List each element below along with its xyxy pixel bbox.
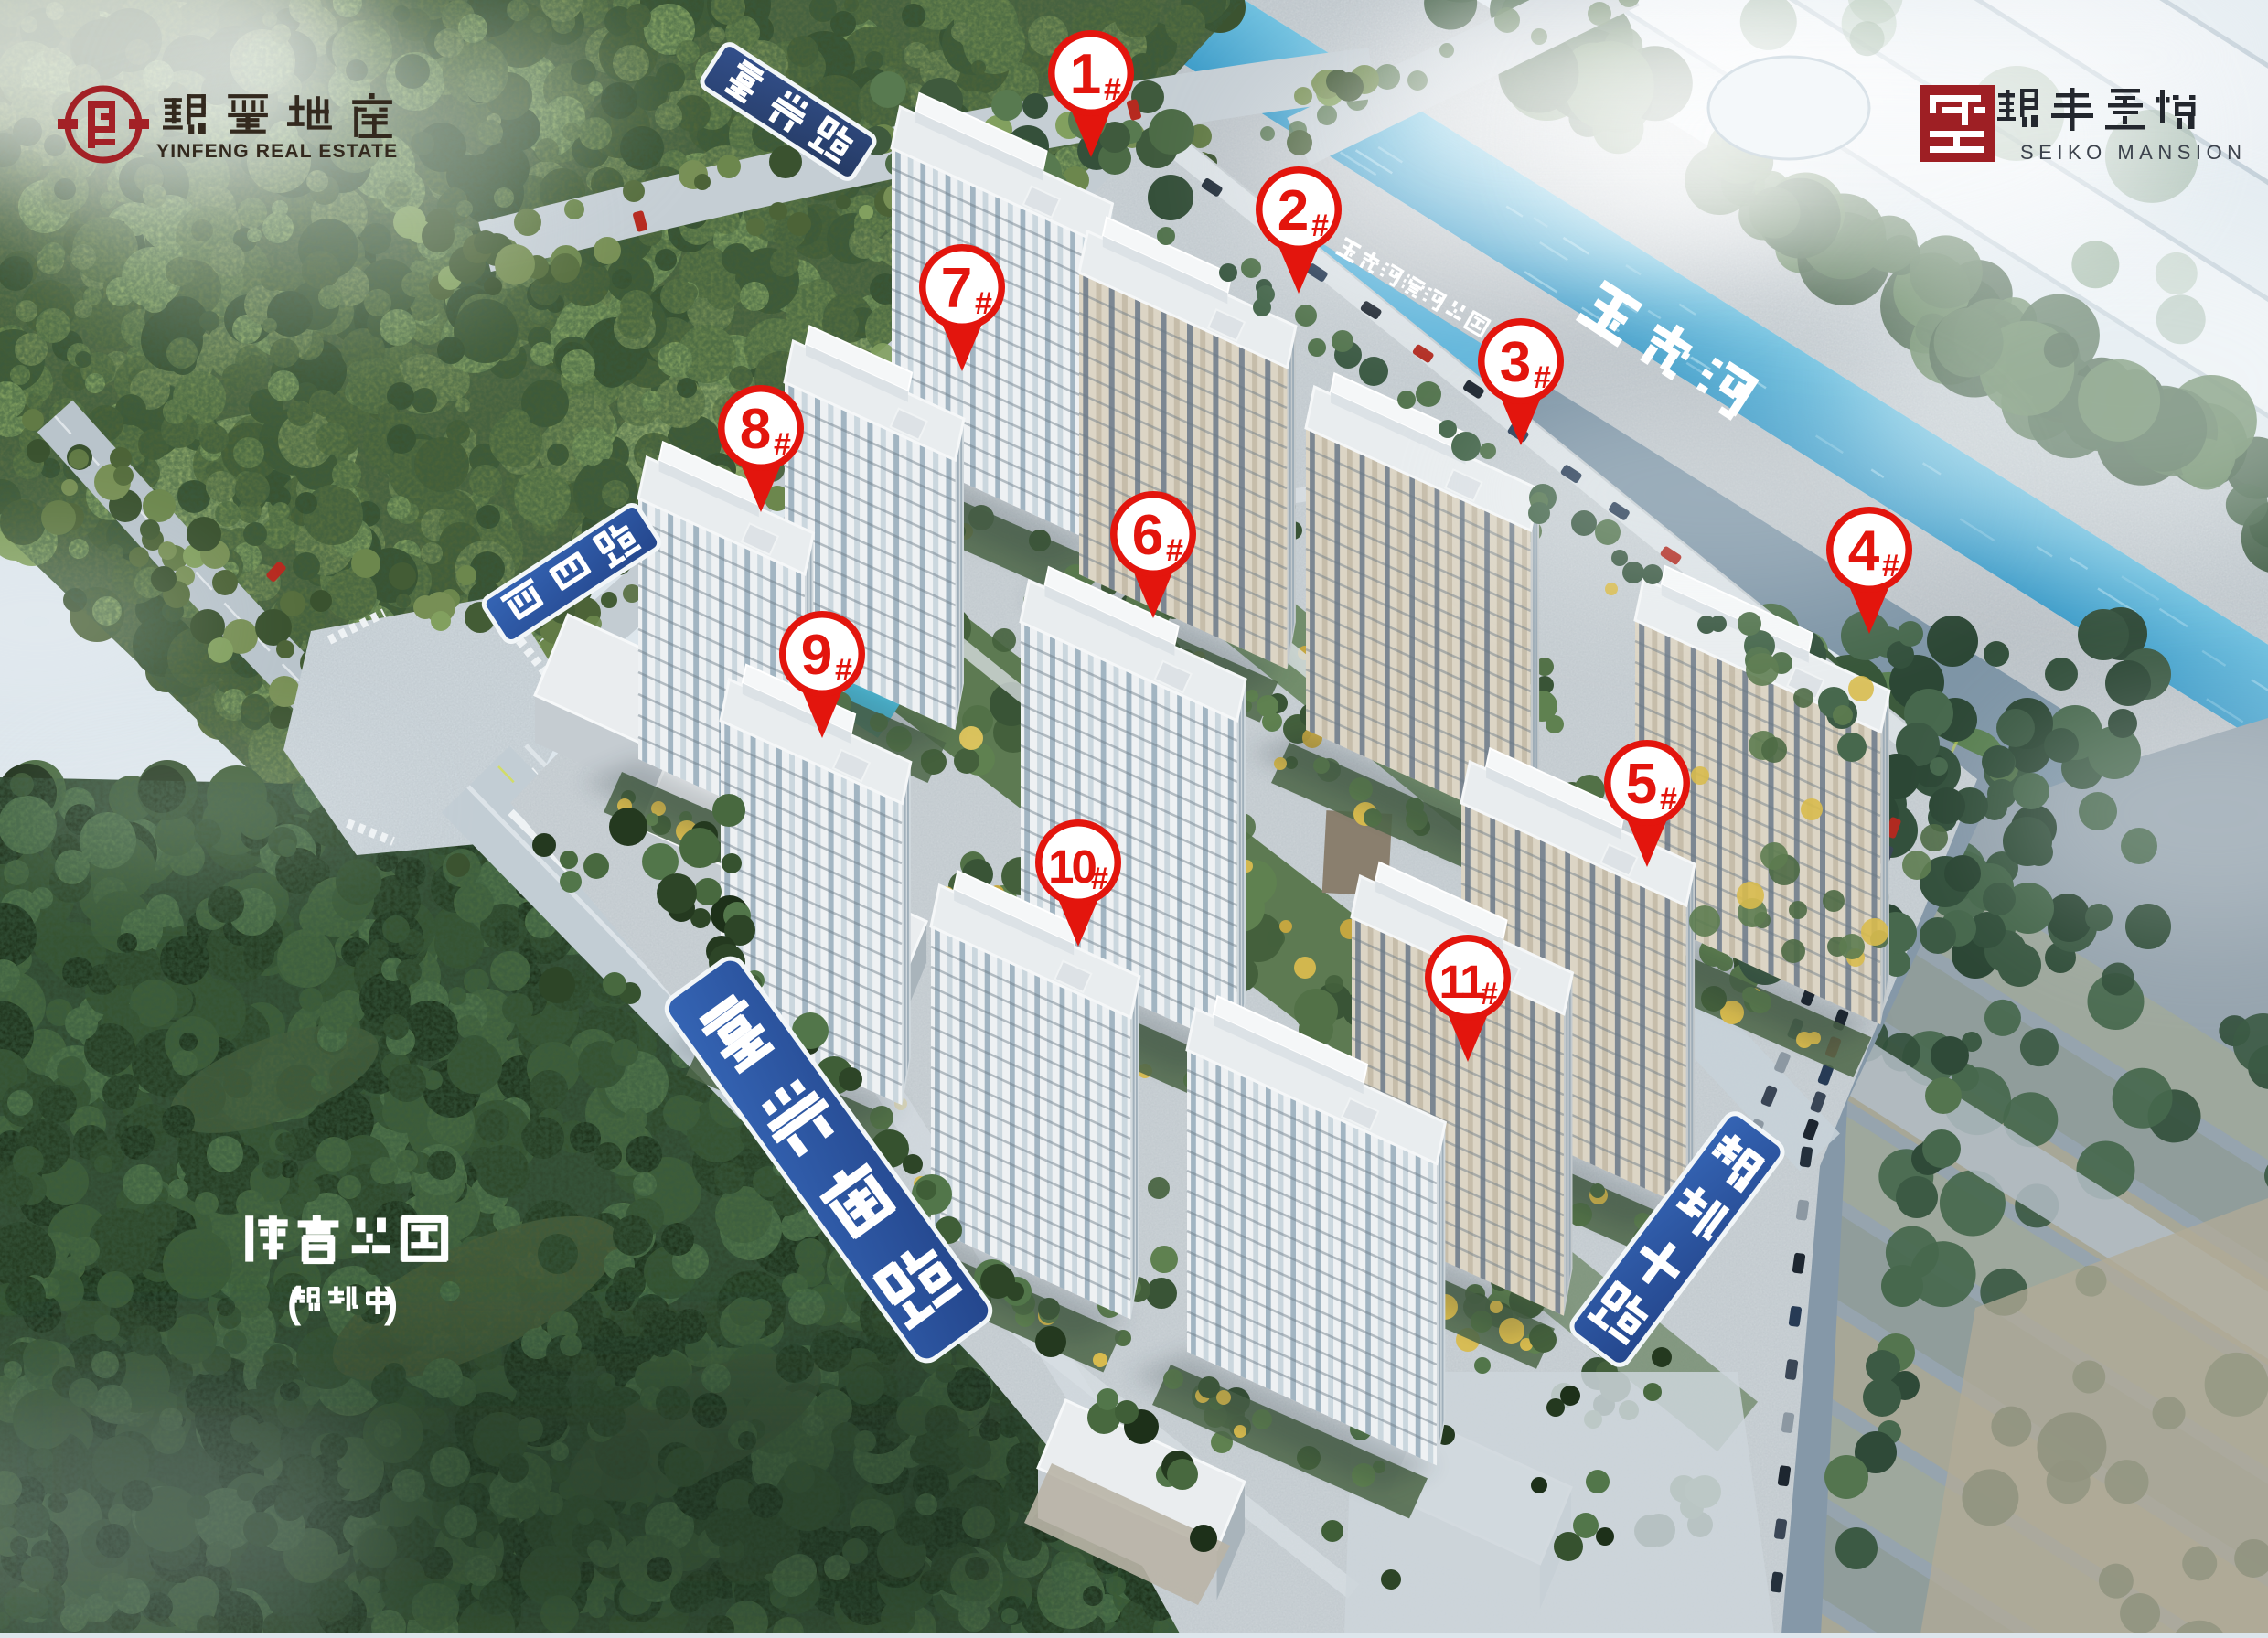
svg-text:#: # [1091,862,1108,896]
svg-text:YINFENG REAL ESTATE: YINFENG REAL ESTATE [156,141,398,162]
svg-text:#: # [835,653,852,688]
svg-text:9: 9 [801,624,831,687]
svg-text:): ) [384,1279,398,1326]
svg-text:#: # [1882,549,1899,583]
svg-text:5: 5 [1626,753,1656,816]
svg-text:#: # [1104,72,1121,107]
svg-text:#: # [774,427,791,462]
svg-text:#: # [1481,977,1498,1012]
svg-text:#: # [1534,360,1551,395]
svg-text:3: 3 [1500,331,1530,394]
svg-text:#: # [1311,209,1329,243]
svg-text:SEIKO MANSION: SEIKO MANSION [2020,141,2247,164]
svg-text:11: 11 [1439,956,1485,1008]
svg-text:2: 2 [1278,179,1307,242]
svg-text:10: 10 [1048,840,1096,893]
svg-text:#: # [1166,533,1183,568]
svg-text:6: 6 [1132,504,1162,567]
svg-text:#: # [975,286,992,321]
svg-text:1: 1 [1070,43,1100,106]
svg-text:4: 4 [1848,519,1880,583]
svg-text:7: 7 [941,257,970,320]
svg-text:#: # [1660,782,1677,817]
svg-text:8: 8 [740,398,770,461]
